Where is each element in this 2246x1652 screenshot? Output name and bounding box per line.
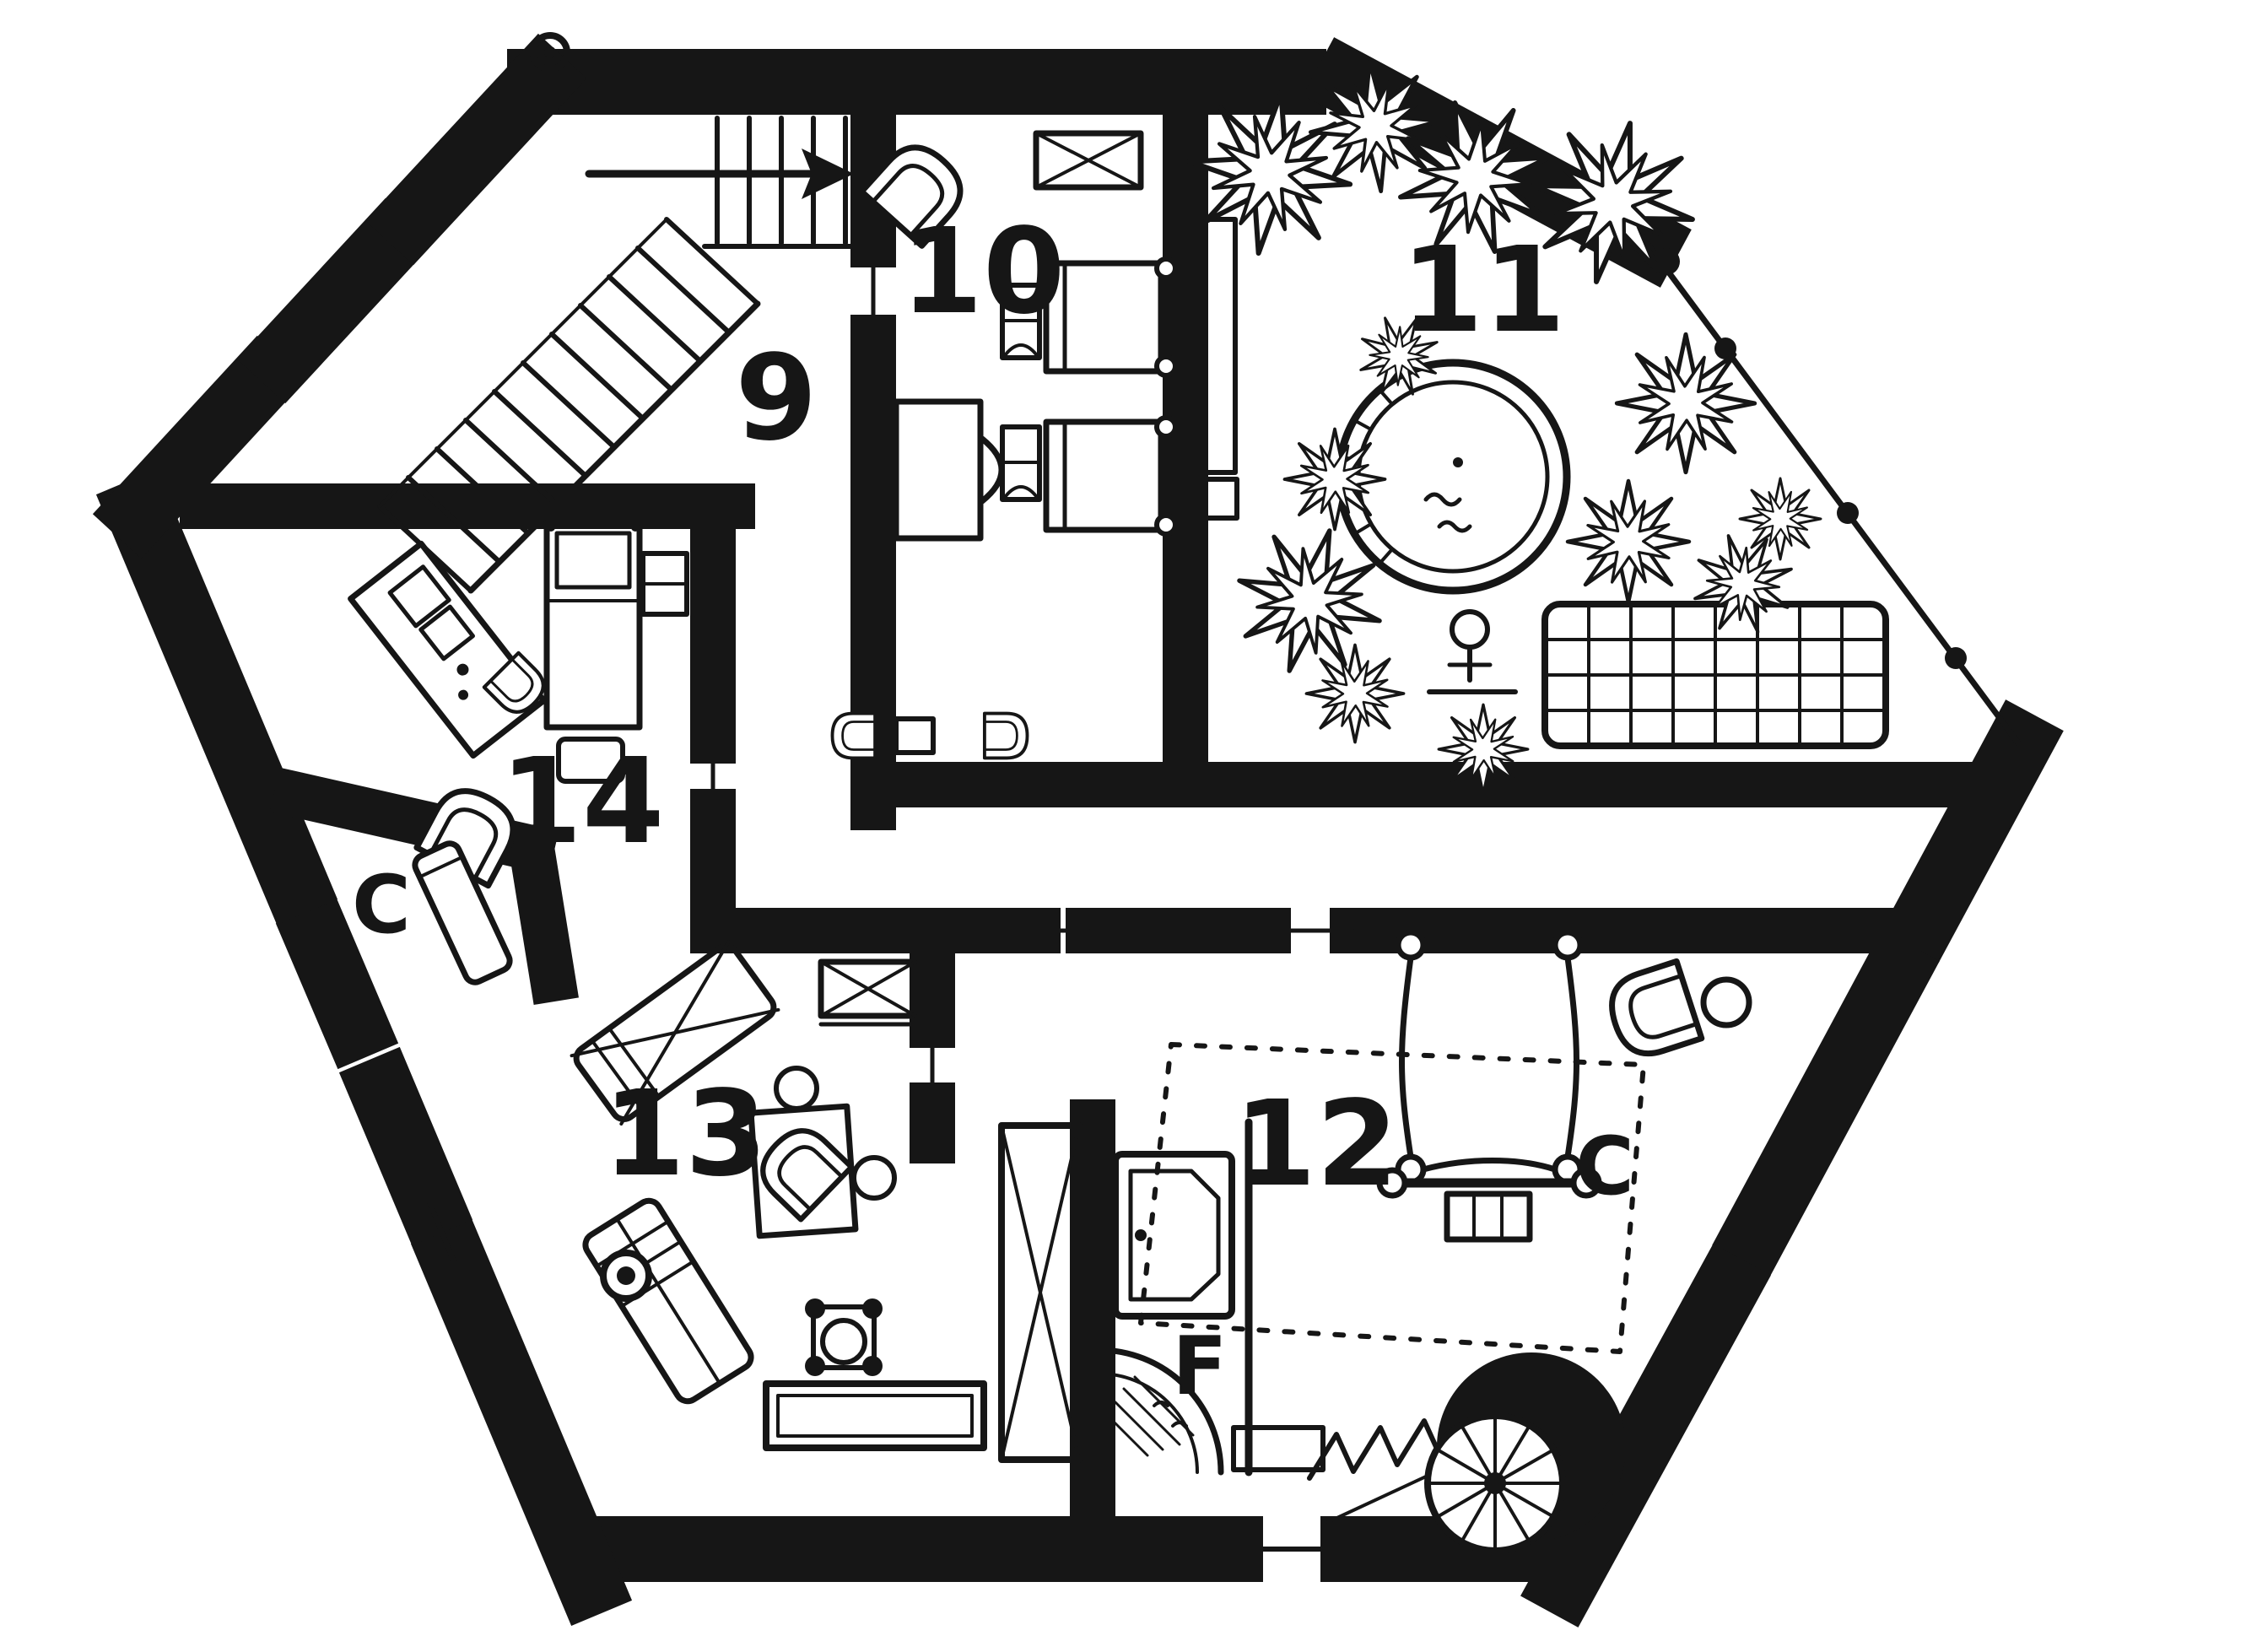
plant-icon (1740, 478, 1821, 559)
plant-icon (1284, 429, 1385, 529)
wardrobe-icon (1036, 133, 1141, 187)
person-figure (1429, 612, 1515, 692)
room-label-11: 11 (1401, 222, 1566, 359)
plant-icon (1439, 705, 1528, 794)
desk-chair-icon (484, 653, 552, 721)
shelf-icon (643, 553, 687, 614)
stair-direction-arrow (589, 148, 854, 199)
bathtub-icon (1115, 1154, 1232, 1316)
tall-wardrobe-icon (1002, 1126, 1079, 1460)
bed-icon (547, 523, 640, 727)
pouf-icon (805, 1298, 883, 1376)
wardrobe-icon (821, 962, 915, 1024)
nightstand-icon (1002, 427, 1039, 499)
closet-label-left: C (352, 859, 411, 952)
room-label-13: 13 (603, 1066, 768, 1203)
bed-icon (1046, 259, 1175, 375)
plant-icon (1568, 481, 1689, 602)
closet-label-right: C (1575, 1120, 1634, 1213)
stool-icon (776, 1068, 817, 1109)
plant-icon (1676, 516, 1811, 652)
side-table-icon (1703, 980, 1749, 1025)
deck-grid (1545, 604, 1886, 746)
desk-icon (896, 402, 1002, 538)
stool-icon (854, 1158, 894, 1198)
bath-label: F (1173, 1320, 1228, 1413)
terrace-railing (1647, 243, 2019, 744)
floor-plan-drawing: 9 10 11 12 13 14 C C F (0, 0, 2246, 1652)
room-label-14: 14 (500, 733, 665, 871)
armchair-icon (1603, 961, 1702, 1062)
desk-icon (351, 543, 544, 755)
bathroom-f (1099, 1154, 1232, 1472)
room-label-10: 10 (901, 203, 1066, 341)
floor-plan-page: 9 10 11 12 13 14 C C F (0, 0, 2246, 1652)
plant-icon (1219, 510, 1400, 691)
plant-icon (1306, 645, 1403, 742)
table-with-chairs-icon (833, 714, 1028, 759)
bench-icon (766, 1384, 984, 1448)
lounger-icon (581, 1196, 756, 1406)
bed-icon (1046, 418, 1175, 534)
chest-icon (1447, 1194, 1530, 1239)
planter-icon (1205, 219, 1235, 472)
room-label-9: 9 (735, 330, 817, 467)
four-poster-bed-icon (1379, 932, 1599, 1196)
plant-icon (1617, 334, 1754, 472)
room-label-12: 12 (1234, 1076, 1399, 1213)
drum-table-icon (603, 1253, 649, 1298)
planter-icon (1205, 479, 1237, 518)
